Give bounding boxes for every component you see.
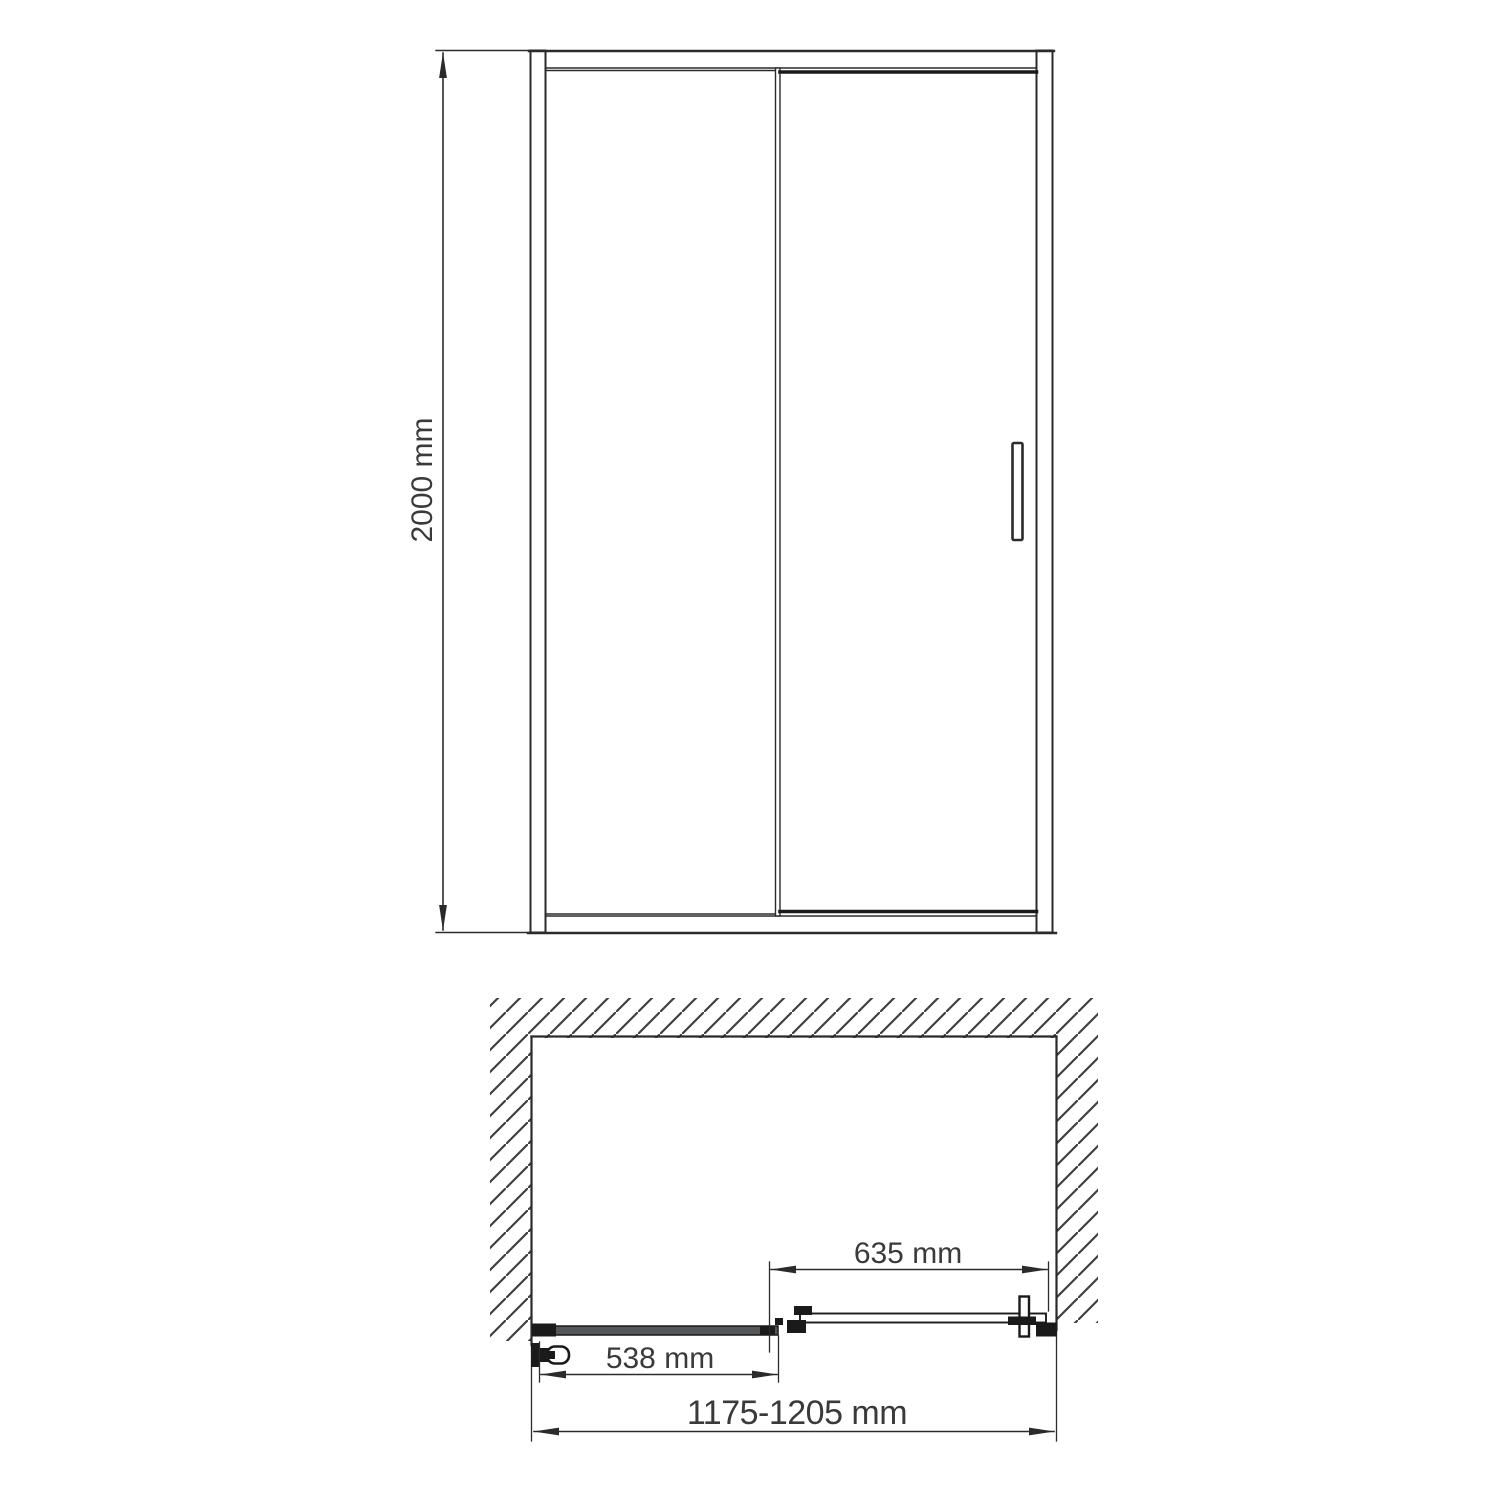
roller-carriage-left [760, 1306, 812, 1335]
overall-width-label: 1175-1205 mm [687, 1394, 907, 1432]
wall-bracket [531, 1343, 569, 1367]
door-width-dimension: 635 mm [770, 1237, 1049, 1352]
height-dimension: 2000 mm [406, 51, 531, 933]
center-stile [776, 68, 781, 916]
door-handle [1013, 443, 1023, 540]
fixed-panel-dimension: 538 mm [540, 1336, 779, 1382]
wall-profile-plan-right [1036, 1323, 1057, 1337]
roller-carriage-right [1008, 1297, 1057, 1337]
fixed-glass-panel-plan [533, 1326, 778, 1335]
wall-profile-left [531, 51, 546, 933]
wall-hatching [490, 998, 1098, 1341]
fixed-panel-label: 538 mm [606, 1342, 714, 1375]
door-width-label: 635 mm [854, 1237, 962, 1270]
sliding-door-panel-front [780, 72, 1037, 912]
top-plan-view: 635 mm 538 mm 1175-1205 mm [490, 998, 1098, 1441]
technical-drawing-canvas: 2000 mm [0, 0, 1500, 1500]
front-elevation-view: 2000 mm [406, 51, 1056, 934]
overall-width-dimension: 1175-1205 mm [534, 1394, 1054, 1432]
fixed-glass-panel-front [546, 71, 776, 915]
wall-profile-right [1037, 51, 1053, 933]
height-dimension-label: 2000 mm [406, 417, 439, 542]
shower-door-drawing: 2000 mm [0, 0, 1500, 1500]
wall-profile-plan-left [532, 1324, 556, 1337]
